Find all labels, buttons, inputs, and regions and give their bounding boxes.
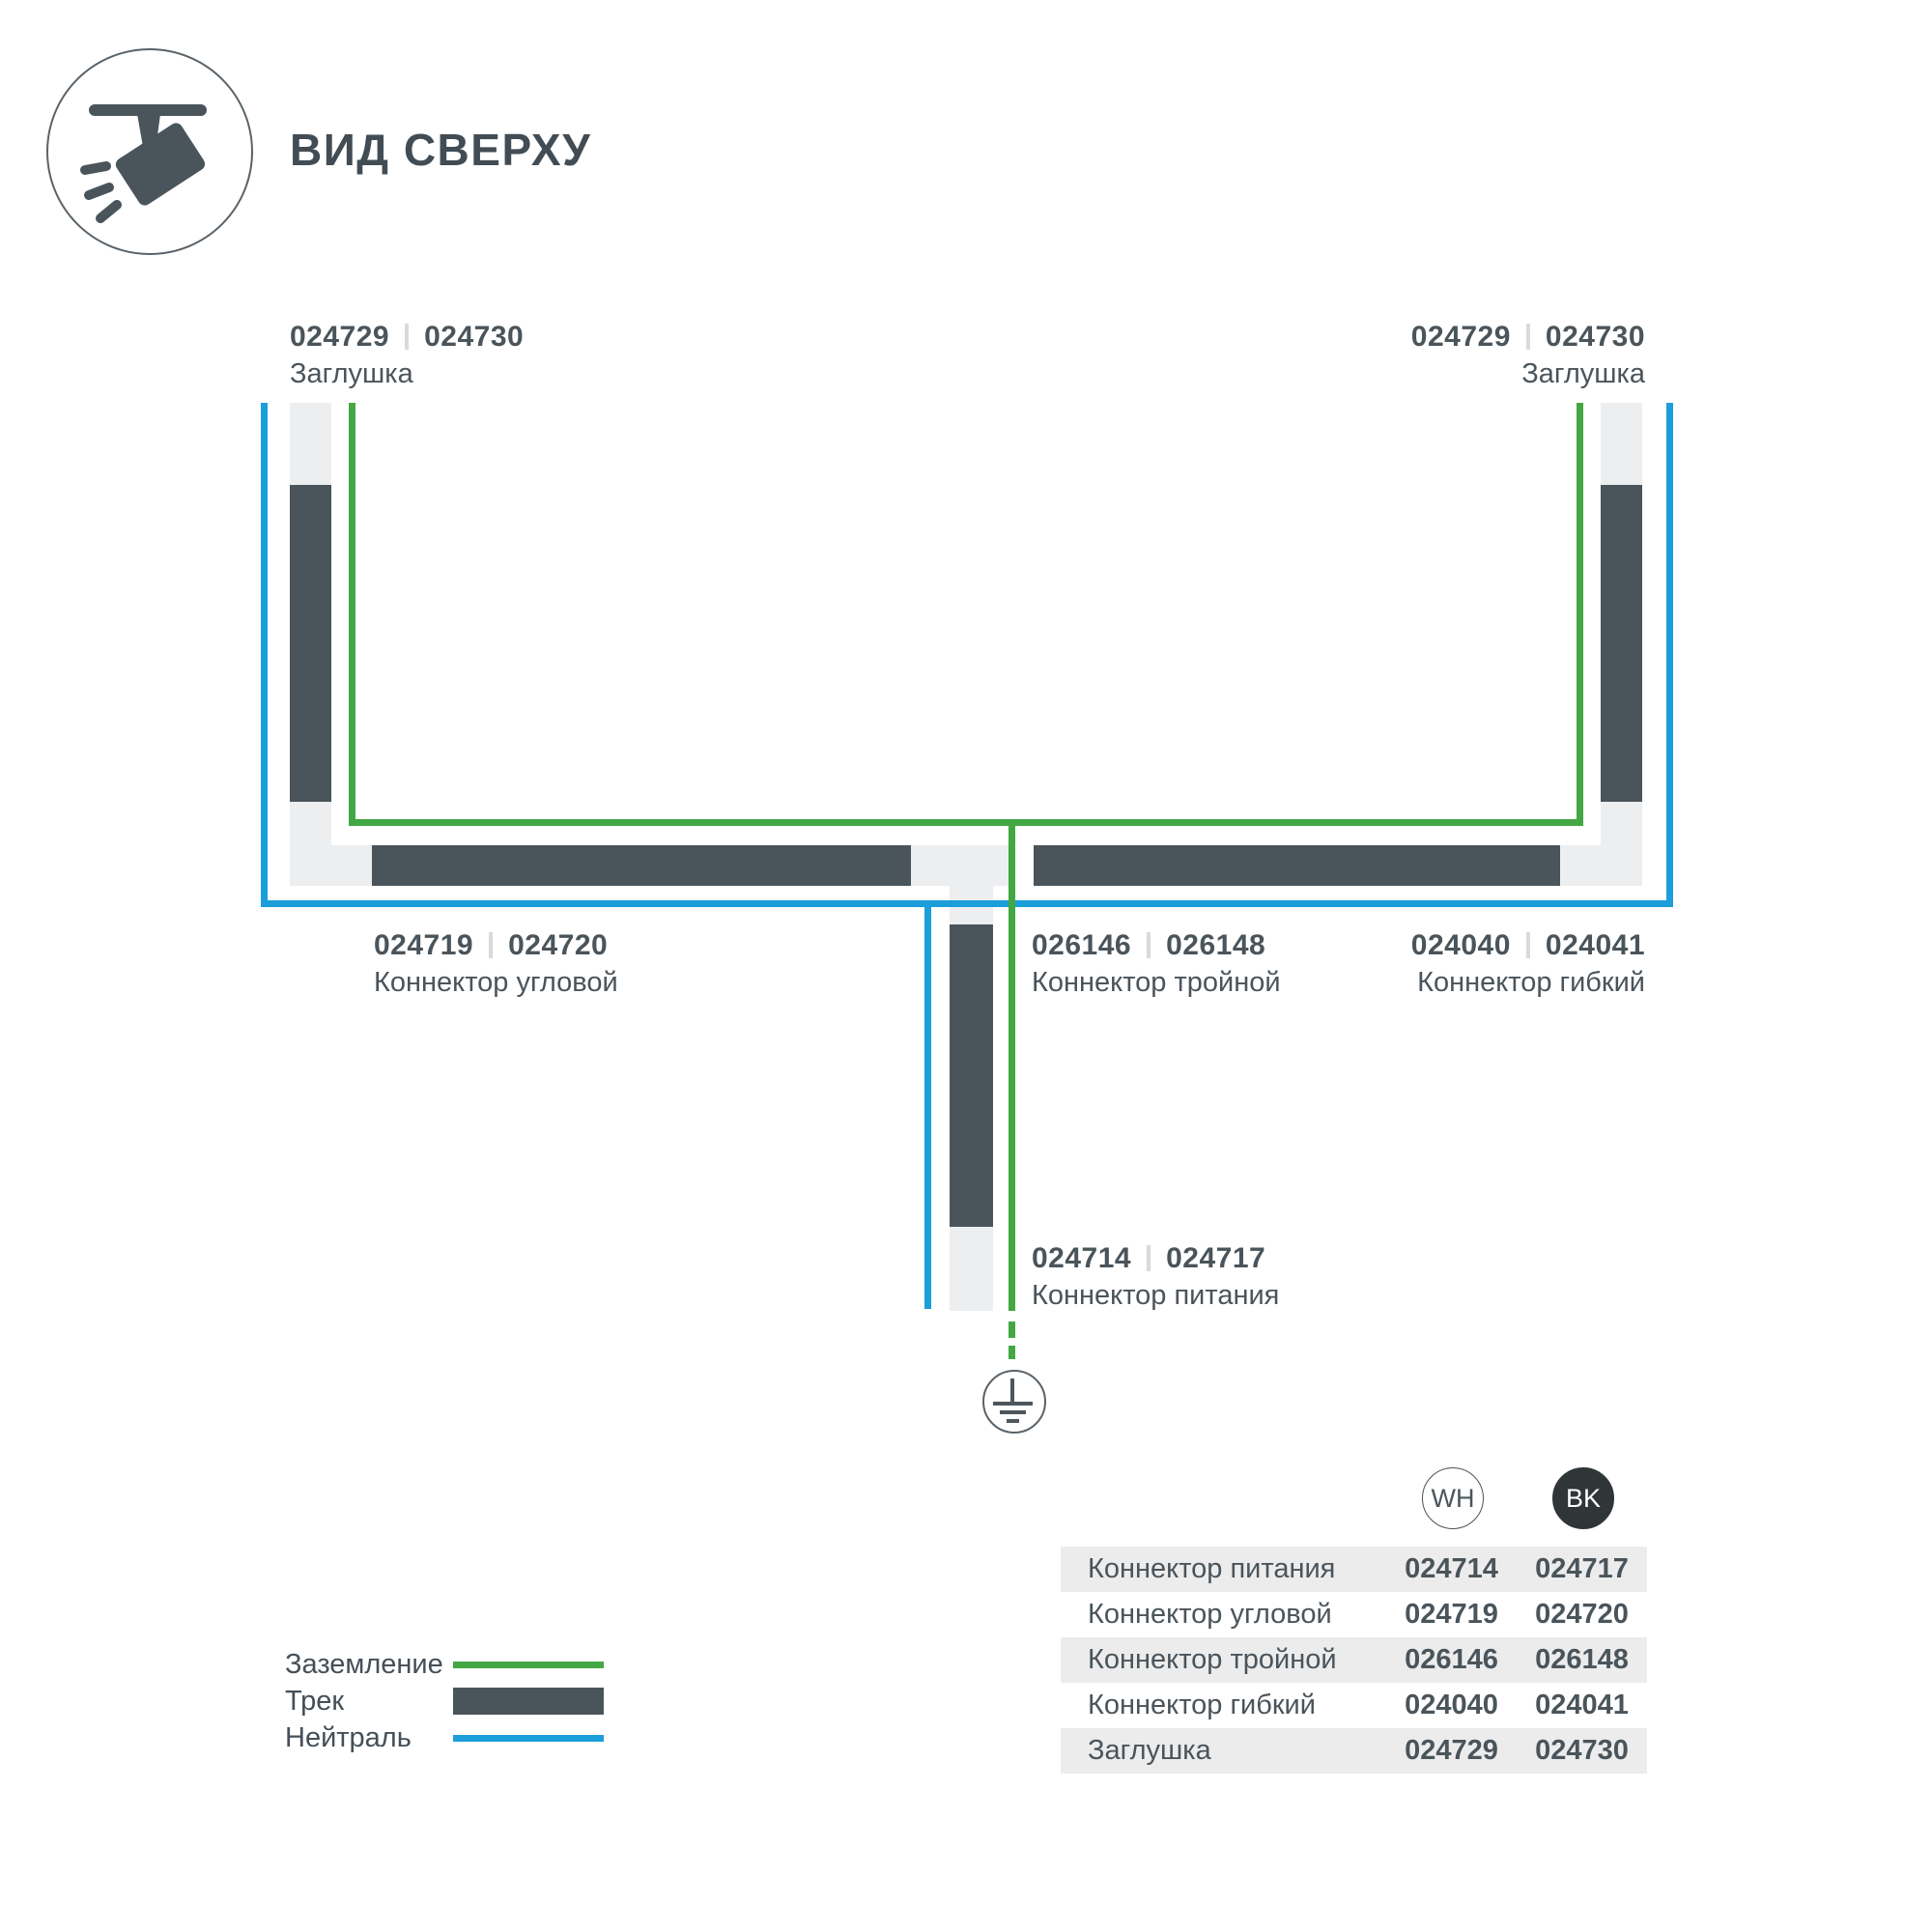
legend-label: Трек xyxy=(285,1686,344,1718)
table-row: Коннектор угловой024719024720 xyxy=(1061,1592,1647,1637)
label-name: Коннектор гибкий xyxy=(1411,966,1645,999)
code-divider xyxy=(489,932,493,958)
code-bk: 024717 xyxy=(1166,1242,1265,1274)
cell-code-bk: 024717 xyxy=(1517,1553,1647,1585)
cell-code-wh: 024040 xyxy=(1386,1690,1517,1721)
endcap-right xyxy=(1601,403,1642,485)
code-bk: 024730 xyxy=(1546,321,1645,353)
product-table: Коннектор питания024714024717Коннектор у… xyxy=(1061,1547,1647,1774)
label-power-connector: 024714024717 Коннектор питания xyxy=(1032,1242,1279,1312)
code-wh: 024729 xyxy=(1411,321,1511,353)
triple-connector-horizontal xyxy=(911,845,1009,886)
track-right-vertical xyxy=(1601,485,1642,802)
neutral-wire-swatch xyxy=(453,1735,604,1742)
earth-ground-bar1 xyxy=(993,1402,1033,1406)
cell-product-name: Коннектор питания xyxy=(1061,1553,1386,1585)
legend: Заземление Трек Нейтраль xyxy=(285,1646,604,1756)
legend-label: Нейтраль xyxy=(285,1722,412,1754)
code-wh: 024729 xyxy=(290,321,389,353)
label-codes: 024729024730 xyxy=(290,321,524,354)
label-flex-connector: 024040024041 Коннектор гибкий xyxy=(1411,929,1645,999)
code-wh: 026146 xyxy=(1032,929,1131,961)
cell-code-bk: 024041 xyxy=(1517,1690,1647,1721)
label-codes: 024719024720 xyxy=(374,929,618,962)
code-divider xyxy=(405,324,409,350)
label-name: Коннектор угловой xyxy=(374,966,618,999)
ground-wire-swatch xyxy=(453,1662,604,1668)
neutral-wire-right-vertical xyxy=(1666,403,1673,907)
track-spotlight-icon xyxy=(46,48,253,255)
cell-code-bk: 026148 xyxy=(1517,1644,1647,1676)
code-wh: 024719 xyxy=(374,929,473,961)
corner-connector-right-horizontal xyxy=(1560,845,1601,886)
cell-code-bk: 024730 xyxy=(1517,1735,1647,1767)
label-endcap-left: 024729024730 Заглушка xyxy=(290,321,524,390)
neutral-wire-horizontal xyxy=(261,900,1673,907)
track-left-vertical xyxy=(290,485,331,802)
color-badge-bk: BK xyxy=(1552,1467,1614,1529)
power-connector xyxy=(950,1227,993,1311)
ground-wire-dash xyxy=(1009,1321,1015,1338)
table-row: Коннектор питания024714024717 xyxy=(1061,1547,1647,1592)
label-corner-connector: 024719024720 Коннектор угловой xyxy=(374,929,618,999)
color-badge-wh: WH xyxy=(1422,1467,1484,1529)
cell-code-wh: 024714 xyxy=(1386,1553,1517,1585)
page-title: ВИД СВЕРХУ xyxy=(290,124,591,176)
cell-code-wh: 024729 xyxy=(1386,1735,1517,1767)
label-codes: 024729024730 xyxy=(1411,321,1645,354)
table-row: Заглушка024729024730 xyxy=(1061,1728,1647,1774)
code-divider xyxy=(1526,932,1530,958)
code-wh: 024040 xyxy=(1411,929,1511,961)
ground-wire-center-drop xyxy=(1009,819,1015,1311)
cell-code-wh: 026146 xyxy=(1386,1644,1517,1676)
cell-product-name: Коннектор гибкий xyxy=(1061,1690,1386,1721)
label-endcap-right: 024729024730 Заглушка xyxy=(1411,321,1645,390)
legend-label: Заземление xyxy=(285,1649,443,1681)
track-bottom-left-horizontal xyxy=(372,845,911,886)
earth-ground-bar2 xyxy=(1000,1410,1026,1414)
earth-ground-bar3 xyxy=(1007,1419,1019,1423)
legend-item-track: Трек xyxy=(285,1683,604,1719)
cell-product-name: Заглушка xyxy=(1061,1735,1386,1767)
table-row: Коннектор гибкий024040024041 xyxy=(1061,1683,1647,1728)
track-swatch xyxy=(453,1688,604,1715)
track-center-vertical xyxy=(950,924,993,1227)
page: ВИД СВЕРХУ 024729024730 Заглушка 0247290… xyxy=(0,0,1932,1932)
code-divider xyxy=(1147,932,1151,958)
ground-wire-horizontal xyxy=(349,819,1583,826)
cell-code-wh: 024719 xyxy=(1386,1599,1517,1631)
table-row: Коннектор тройной026146026148 xyxy=(1061,1637,1647,1683)
cell-code-bk: 024720 xyxy=(1517,1599,1647,1631)
label-codes: 024040024041 xyxy=(1411,929,1645,962)
code-bk: 026148 xyxy=(1166,929,1265,961)
cell-product-name: Коннектор угловой xyxy=(1061,1599,1386,1631)
code-divider xyxy=(1147,1245,1151,1271)
legend-item-ground: Заземление xyxy=(285,1646,604,1683)
ground-wire-right-vertical xyxy=(1577,403,1583,826)
code-bk: 024041 xyxy=(1546,929,1645,961)
neutral-wire-left-vertical xyxy=(261,403,268,907)
label-name: Заглушка xyxy=(290,357,524,390)
code-wh: 024714 xyxy=(1032,1242,1131,1274)
corner-connector-left-horizontal xyxy=(331,845,372,886)
code-bk: 024720 xyxy=(508,929,608,961)
ground-wire-left-vertical xyxy=(349,403,355,826)
label-codes: 026146026148 xyxy=(1032,929,1281,962)
label-triple-connector: 026146026148 Коннектор тройной xyxy=(1032,929,1281,999)
neutral-wire-center-drop xyxy=(924,900,931,1309)
label-name: Заглушка xyxy=(1411,357,1645,390)
cell-product-name: Коннектор тройной xyxy=(1061,1644,1386,1676)
endcap-left xyxy=(290,403,331,485)
ground-wire-dash xyxy=(1009,1346,1015,1359)
track-bottom-right-horizontal xyxy=(1034,845,1560,886)
earth-ground-stem xyxy=(1010,1378,1014,1404)
code-bk: 024730 xyxy=(424,321,524,353)
label-name: Коннектор тройной xyxy=(1032,966,1281,999)
track-spotlight-glyph xyxy=(48,50,247,249)
legend-item-neutral: Нейтраль xyxy=(285,1719,604,1756)
corner-connector-right-vertical xyxy=(1601,802,1642,886)
label-codes: 024714024717 xyxy=(1032,1242,1279,1275)
label-name: Коннектор питания xyxy=(1032,1279,1279,1312)
code-divider xyxy=(1526,324,1530,350)
corner-connector-left-vertical xyxy=(290,802,331,886)
